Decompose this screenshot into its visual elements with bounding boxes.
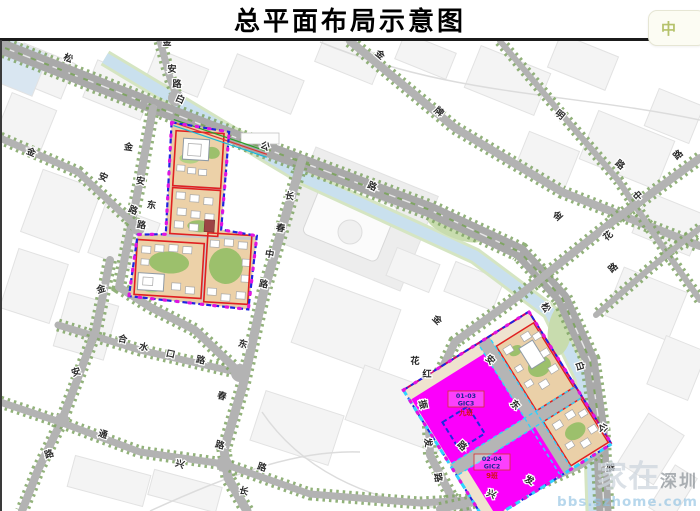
ime-chip[interactable]: 中: [648, 10, 700, 46]
road-junction: [55, 413, 69, 427]
page-title: 总平面布局示意图: [234, 1, 466, 38]
map-frame-left-border: [0, 40, 2, 511]
building: [238, 242, 247, 250]
building: [169, 244, 178, 252]
building: [204, 198, 213, 206]
building: [188, 143, 202, 156]
road-junction: [231, 364, 249, 382]
road-label-char: 花: [410, 355, 420, 367]
gic3-parcel-note: 九班: [458, 408, 473, 417]
building: [210, 240, 219, 248]
building: [177, 165, 185, 171]
building: [236, 292, 245, 300]
building: [143, 277, 153, 286]
building: [221, 294, 230, 302]
gic3-parcel-id: 01-03: [456, 393, 476, 400]
building: [242, 259, 250, 266]
building: [142, 246, 151, 254]
plan-map: 01-03 GIC3 九班 02-04 GIC2 9班 松白公路松白公路金安路金…: [0, 0, 700, 511]
building: [241, 275, 249, 282]
building: [141, 259, 149, 265]
building: [183, 246, 192, 254]
building-courtyard: [338, 220, 362, 244]
ime-chip-label: 中: [661, 18, 676, 39]
building: [189, 224, 198, 232]
screenshot-root: 01-03 GIC3 九班 02-04 GIC2 9班 松白公路松白公路金安路金…: [0, 0, 700, 511]
small-sign-box: [241, 133, 279, 144]
gic3-parcel-code: GIC3: [458, 401, 475, 408]
building: [224, 239, 233, 247]
building: [155, 245, 164, 253]
building: [171, 283, 180, 291]
road-label-char: 安: [135, 174, 146, 187]
road-label-char: 红: [422, 368, 431, 380]
building: [177, 208, 186, 216]
gic2-parcel-note: 9班: [486, 471, 498, 480]
building: [198, 169, 206, 175]
building: [185, 287, 194, 295]
building: [191, 211, 200, 219]
title-bar: 总平面布局示意图: [0, 0, 700, 41]
building: [190, 195, 199, 203]
building: [188, 167, 196, 173]
building: [176, 192, 185, 200]
road-label-char: 安: [167, 63, 176, 75]
building: [207, 288, 216, 296]
nw-dark-building: [204, 220, 215, 233]
gic2-parcel-id: 02-04: [482, 456, 503, 463]
road-junction: [216, 456, 232, 472]
gic2-parcel-code: GIC2: [484, 464, 501, 471]
building: [174, 221, 183, 229]
road-label-char: 路: [172, 78, 182, 90]
road-label-char: 东: [146, 198, 157, 211]
